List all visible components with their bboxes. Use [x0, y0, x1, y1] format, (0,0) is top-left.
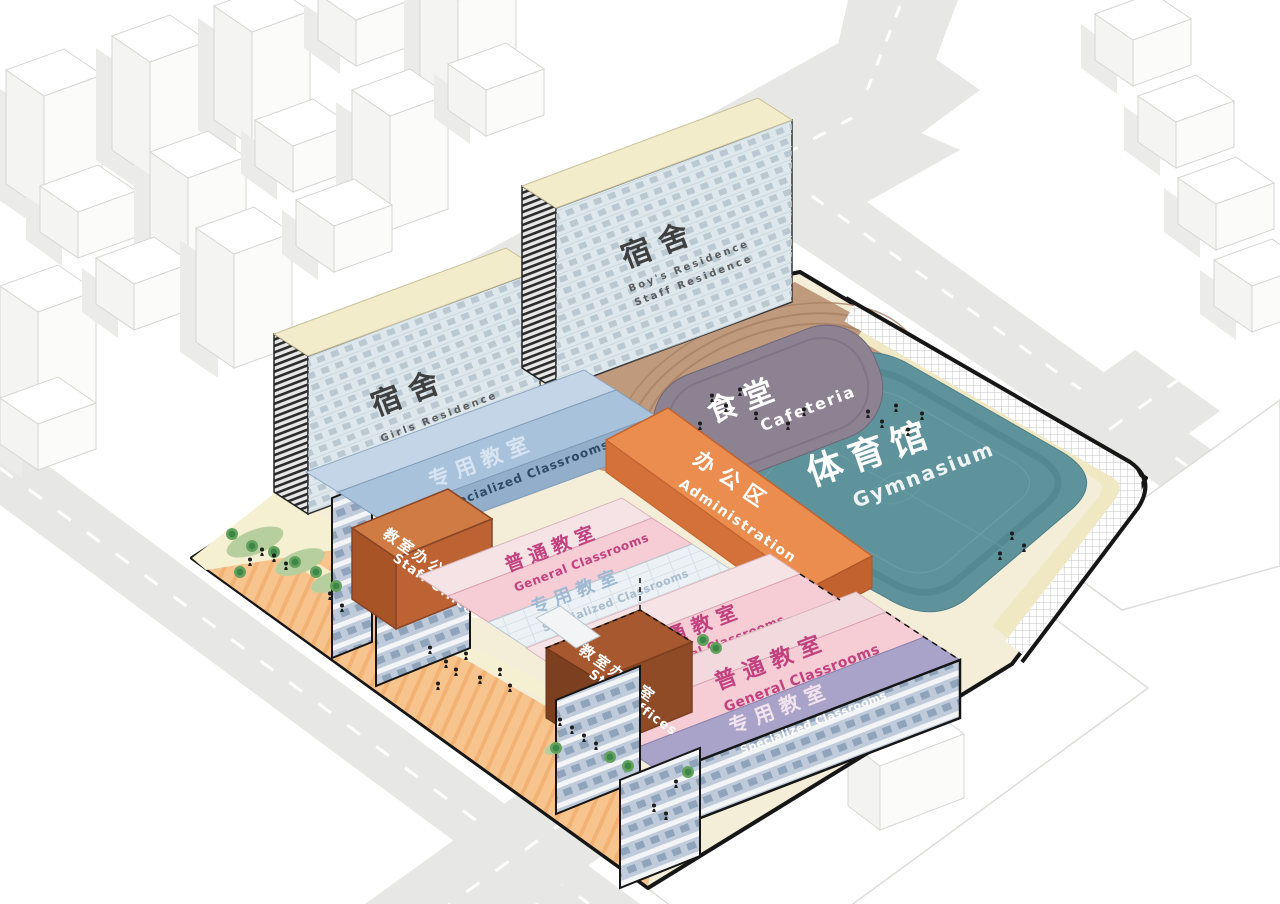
diagram-canvas: 体育馆 Gymnasium 食堂 Cafeteria [0, 0, 1280, 904]
campus-diagram: 体育馆 Gymnasium 食堂 Cafeteria [0, 0, 1280, 904]
boys-residence-louver-side [522, 186, 556, 390]
girls-residence-louver-side [274, 334, 308, 514]
